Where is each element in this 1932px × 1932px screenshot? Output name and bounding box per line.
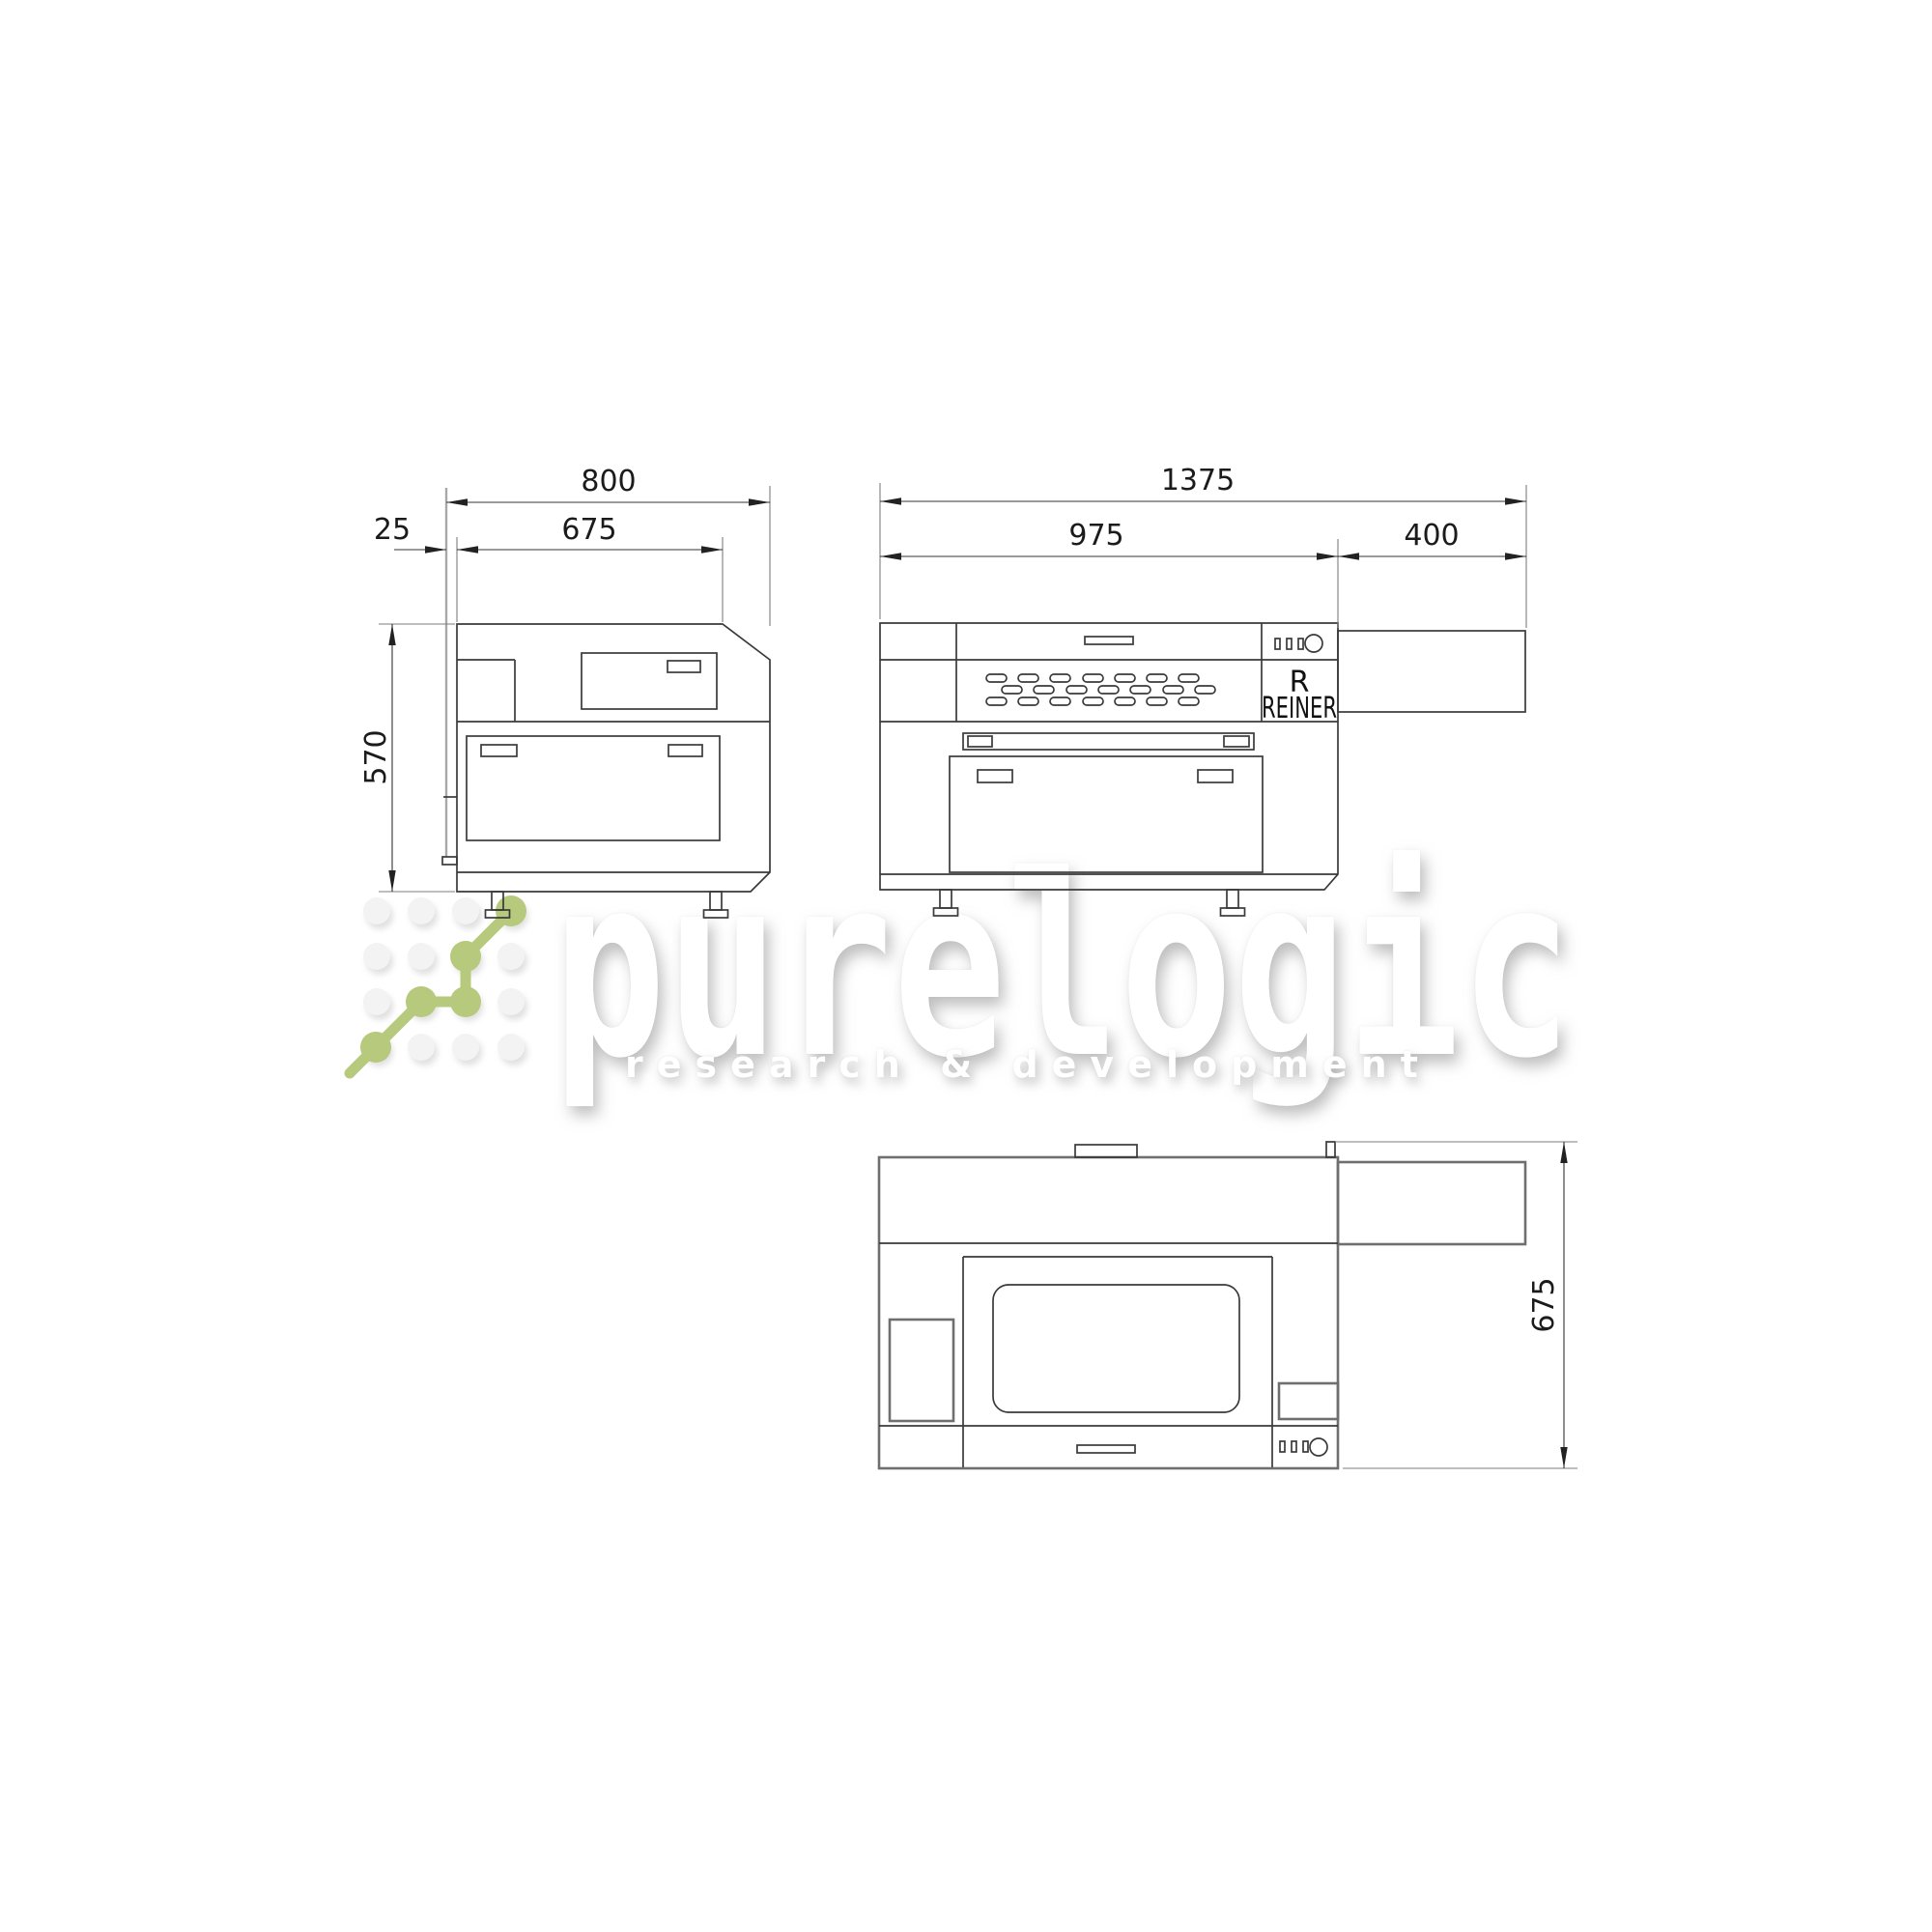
logo-dot [497, 988, 525, 1015]
dim-label-front-body-width: 975 [1068, 519, 1123, 553]
corner-tab [1326, 1142, 1335, 1157]
logo-green-dot [450, 941, 481, 972]
gantry-rail [963, 733, 1254, 750]
wall-bracket-foot [442, 857, 457, 865]
extension-lines [880, 483, 1526, 628]
machine-foot [934, 890, 958, 916]
rail-end-block [968, 736, 992, 747]
top-tab [1075, 1145, 1137, 1157]
indicator-slot [1280, 1441, 1285, 1452]
dim-label-side-height: 570 [359, 729, 393, 784]
upper-window-vent [668, 661, 700, 672]
dim-label-front-extension-width: 400 [1404, 519, 1459, 553]
dim-label-side-wall-gap: 25 [374, 513, 411, 547]
machine-outline [457, 624, 770, 892]
door-handle [481, 745, 517, 756]
power-button-glyph [1305, 635, 1322, 652]
extension-duct [1338, 631, 1525, 712]
logo-dot [408, 897, 435, 924]
extension-duct [1338, 1162, 1525, 1244]
left-compartment [890, 1320, 953, 1421]
lid-window [993, 1285, 1239, 1412]
logo-green-dot [450, 986, 481, 1017]
extension-lines [379, 486, 770, 892]
indicator-slot [1287, 639, 1292, 649]
vent-grid [986, 674, 1215, 705]
logo-green-dot [406, 986, 437, 1017]
side-view: 800 675 25 570 [359, 465, 770, 918]
indicator-slot [1303, 1441, 1308, 1452]
panel-dividers [956, 623, 1262, 722]
indicator-slot [1275, 639, 1280, 649]
power-button-glyph [1310, 1438, 1327, 1456]
door-handle [978, 770, 1012, 782]
door-handle [668, 745, 702, 756]
logo-dot [363, 988, 390, 1015]
logo-dot [363, 943, 390, 970]
machine-foot [1221, 890, 1245, 916]
brand-plate: R REINER [1262, 666, 1337, 725]
machine-foot [704, 892, 728, 918]
logo-green-dot [496, 895, 526, 926]
lid-frame [963, 1257, 1272, 1467]
dim-label-front-total-width: 1375 [1161, 464, 1235, 497]
logo-green-dot [360, 1032, 391, 1063]
dim-label-side-total-depth: 800 [581, 465, 636, 498]
logo-dot [497, 1034, 525, 1061]
indicator-slot [1298, 639, 1303, 649]
logo-dot [452, 1034, 479, 1061]
dim-label-side-body-depth: 675 [561, 513, 616, 547]
front-slot [1077, 1445, 1135, 1453]
logo-dot [408, 943, 435, 970]
door-handle [1198, 770, 1233, 782]
front-door [950, 756, 1263, 872]
top-slot [1085, 637, 1133, 644]
control-panel [1280, 1438, 1327, 1456]
dim-label-top-depth: 675 [1527, 1277, 1561, 1332]
indicator-slot [1292, 1441, 1296, 1452]
rail-end-block [1224, 736, 1249, 747]
front-view: R REINER 1375 975 [880, 464, 1526, 916]
machine-dimension-drawing: 800 675 25 570 [0, 0, 1932, 1932]
side-door [467, 736, 720, 840]
logo-dot [408, 1034, 435, 1061]
control-panel [1275, 635, 1322, 652]
logo-dot [497, 943, 525, 970]
watermark-dot-logo [350, 895, 528, 1073]
top-view: 675 [879, 1142, 1577, 1468]
logo-dot [452, 897, 479, 924]
side-compartment [457, 660, 515, 722]
technical-drawing-page: purelogic research & development [0, 0, 1932, 1932]
brand-plate-name: REINER [1262, 692, 1337, 725]
logo-dot [363, 897, 390, 924]
right-compartment [1279, 1383, 1338, 1419]
